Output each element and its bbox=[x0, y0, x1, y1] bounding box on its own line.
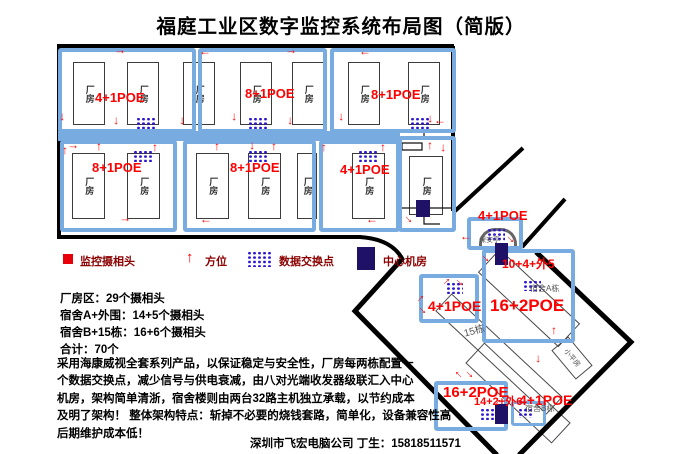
center-room-icon bbox=[416, 200, 430, 217]
legend-direction-label: 方位 bbox=[205, 253, 227, 269]
stats-line: 宿舍B+15栋：16+6个摄相头 bbox=[60, 324, 206, 340]
direction-arrow-icon: ↑ bbox=[459, 235, 471, 241]
direction-arrow-icon: ↑ bbox=[249, 141, 255, 153]
road-diagonal-upper bbox=[455, 148, 523, 211]
poe-label: 4+1POE bbox=[95, 91, 145, 104]
poe-label: 8+1POE bbox=[371, 88, 421, 101]
direction-arrow-icon: ↑ bbox=[199, 218, 211, 224]
direction-arrow-icon: ↑ bbox=[231, 112, 237, 124]
center-room-icon bbox=[357, 247, 375, 270]
direction-arrow-icon: ↑ bbox=[358, 50, 370, 56]
direction-arrow-icon: ↑ bbox=[179, 116, 185, 128]
legend-switch-label: 数据交换点 bbox=[279, 253, 334, 269]
poe-label: 8+1POE bbox=[230, 161, 280, 174]
direction-arrow-icon: ↑ bbox=[365, 218, 377, 224]
direction-arrow-icon: ↑ bbox=[198, 50, 210, 56]
direction-arrow-icon: ↑ bbox=[152, 141, 158, 153]
direction-arrow-icon: ↑ bbox=[440, 143, 446, 155]
legend-camera-label: 监控摄相头 bbox=[80, 253, 135, 269]
direction-arrow-icon: ↑ bbox=[115, 49, 127, 55]
camera-icon bbox=[63, 254, 73, 264]
direction-arrow-icon: ↑ bbox=[186, 250, 194, 265]
direction-arrow-icon: ↑ bbox=[59, 112, 65, 124]
switch-dots-icon bbox=[247, 116, 269, 129]
diagram-canvas: 福庭工业区数字监控系统布局图（简版） 厂房 厂房 厂房 厂房 厂房 厂房 厂房 … bbox=[0, 0, 682, 454]
description-text: 采用海康威视全套系列产品，以保证稳定与安全性，厂房每两栋配置一 个数据交换点，减… bbox=[57, 356, 477, 443]
switch-dots-icon bbox=[135, 116, 157, 129]
direction-arrow-icon: ↑ bbox=[96, 140, 102, 152]
direction-arrow-icon: ↑ bbox=[380, 141, 386, 153]
dorm-a-label: 宿舍A栋 bbox=[530, 285, 559, 293]
direction-arrow-icon: ↑ bbox=[214, 140, 220, 152]
legend-center-room-label: 中心机房 bbox=[383, 253, 427, 269]
guard-booth-label: 保安亭 bbox=[479, 237, 500, 244]
poe-label: 8+1POE bbox=[92, 161, 142, 174]
direction-arrow-icon: ↑ bbox=[120, 217, 132, 223]
direction-arrow-icon: ↑ bbox=[271, 140, 277, 152]
direction-arrow-icon: ↑ bbox=[286, 49, 298, 55]
poe-label: 4+1POE bbox=[478, 209, 528, 222]
direction-arrow-icon: ↑ bbox=[68, 144, 80, 150]
poe-label: 4+1POE bbox=[428, 299, 481, 313]
direction-arrow-icon: ↑ bbox=[551, 324, 557, 336]
direction-arrow-icon: ↑ bbox=[287, 116, 293, 128]
switch-dots-icon bbox=[357, 149, 379, 162]
stats-line: 合计：70个 bbox=[60, 341, 119, 357]
stats-line: 厂房区：29个摄相头 bbox=[60, 290, 165, 306]
poe-label: 16+2POE bbox=[490, 297, 564, 314]
dorm-b-label: 宿舍B栋 bbox=[525, 405, 554, 413]
poe-label: 8+1POE bbox=[245, 87, 295, 100]
direction-arrow-icon: ↑ bbox=[427, 139, 433, 151]
switch-dots-icon bbox=[246, 250, 273, 267]
road-diagonal-lower bbox=[522, 199, 565, 247]
camera-count-label: 10+4+外5 bbox=[502, 258, 555, 270]
direction-arrow-icon: ↑ bbox=[338, 112, 344, 124]
direction-arrow-icon: ↑ bbox=[535, 354, 541, 366]
footer-contact: 深圳市飞宏电脑公司 丁生：15818511571 bbox=[250, 435, 461, 451]
direction-arrow-icon: ↑ bbox=[113, 116, 119, 128]
stats-line: 宿舍A+外围：14+5个摄相头 bbox=[60, 307, 204, 323]
direction-arrow-icon: ↑ bbox=[321, 141, 327, 153]
direction-arrow-icon: ↑ bbox=[433, 119, 445, 125]
poe-label: 4+1POE bbox=[340, 163, 390, 176]
